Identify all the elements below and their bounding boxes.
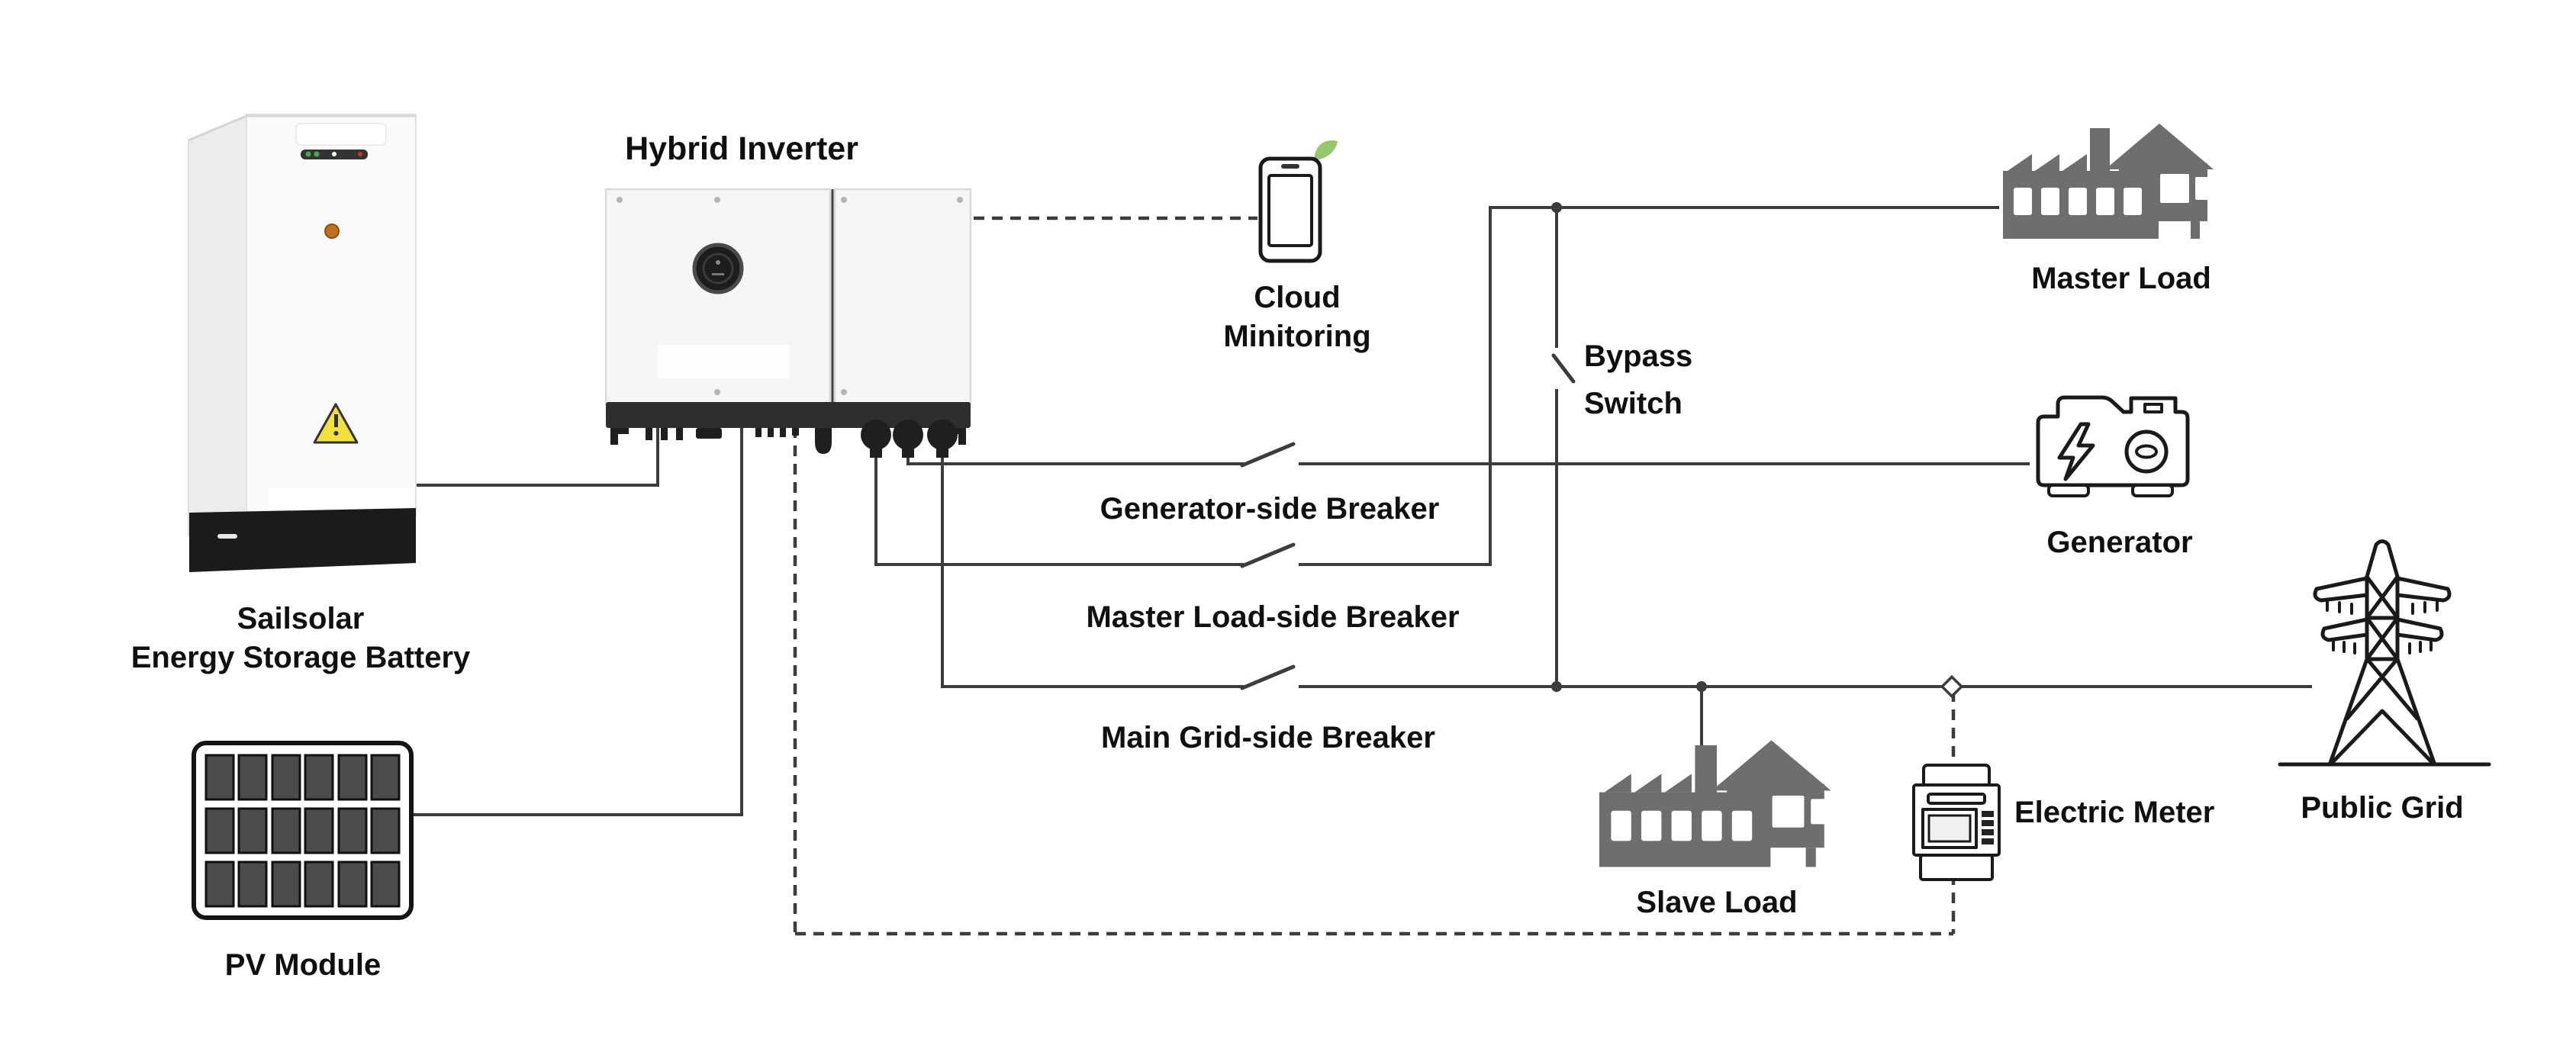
battery-indicator-dot — [325, 224, 339, 238]
bypass-label-line2: Switch — [1584, 380, 1692, 427]
hybrid-inverter-icon — [606, 189, 971, 458]
meter-tap-diamond — [1942, 677, 1961, 696]
electric-meter-icon — [1914, 765, 1999, 880]
battery-icon — [188, 114, 416, 572]
slave-load-icon — [1599, 740, 1831, 867]
battery-label-line2: Energy Storage Battery — [131, 639, 471, 677]
master-load-icon — [2003, 124, 2214, 239]
main-grid-breaker-label: Main Grid-side Breaker — [1101, 719, 1435, 758]
generator-breaker-label: Generator-side Breaker — [1100, 490, 1440, 529]
system-diagram-canvas: Hybrid Inverter Sailsolar Energy Storage… — [0, 0, 2576, 1039]
public-grid-tower-icon — [2280, 542, 2489, 765]
junction-dot — [1551, 681, 1562, 692]
master-load-label: Master Load — [2031, 259, 2211, 298]
pv-module-icon — [194, 743, 411, 918]
junction-dot — [1551, 202, 1562, 213]
inverter-display — [694, 245, 742, 292]
main-grid-breaker-symbol — [1242, 667, 1293, 688]
cloud-monitoring-label: Cloud Minitoring — [1223, 278, 1370, 356]
public-grid-label: Public Grid — [2301, 789, 2463, 828]
cloud-monitoring-phone-icon — [1261, 140, 1338, 261]
battery-label: Sailsolar Energy Storage Battery — [131, 600, 471, 677]
master-load-breaker-label: Master Load-side Breaker — [1086, 598, 1459, 637]
bypass-switch-symbol — [1554, 207, 1573, 687]
bypass-switch-label: Bypass Switch — [1584, 333, 1692, 427]
battery-label-line1: Sailsolar — [131, 600, 471, 639]
generator-breaker-symbol — [1242, 444, 1293, 465]
junction-dot — [1696, 681, 1707, 692]
cloud-label-line2: Minitoring — [1223, 317, 1370, 356]
inverter-title: Hybrid Inverter — [625, 128, 858, 170]
slave-load-label: Slave Load — [1636, 883, 1797, 922]
cloud-label-line1: Cloud — [1223, 278, 1370, 317]
leaf-icon — [1314, 140, 1338, 160]
inverter-label-strip — [658, 345, 789, 378]
generator-icon — [2038, 397, 2188, 496]
bypass-label-line1: Bypass — [1584, 333, 1692, 380]
generator-label: Generator — [2046, 523, 2192, 562]
electric-meter-label: Electric Meter — [2014, 793, 2214, 832]
pv-module-label: PV Module — [225, 946, 381, 985]
master-load-breaker-symbol — [1242, 545, 1293, 566]
